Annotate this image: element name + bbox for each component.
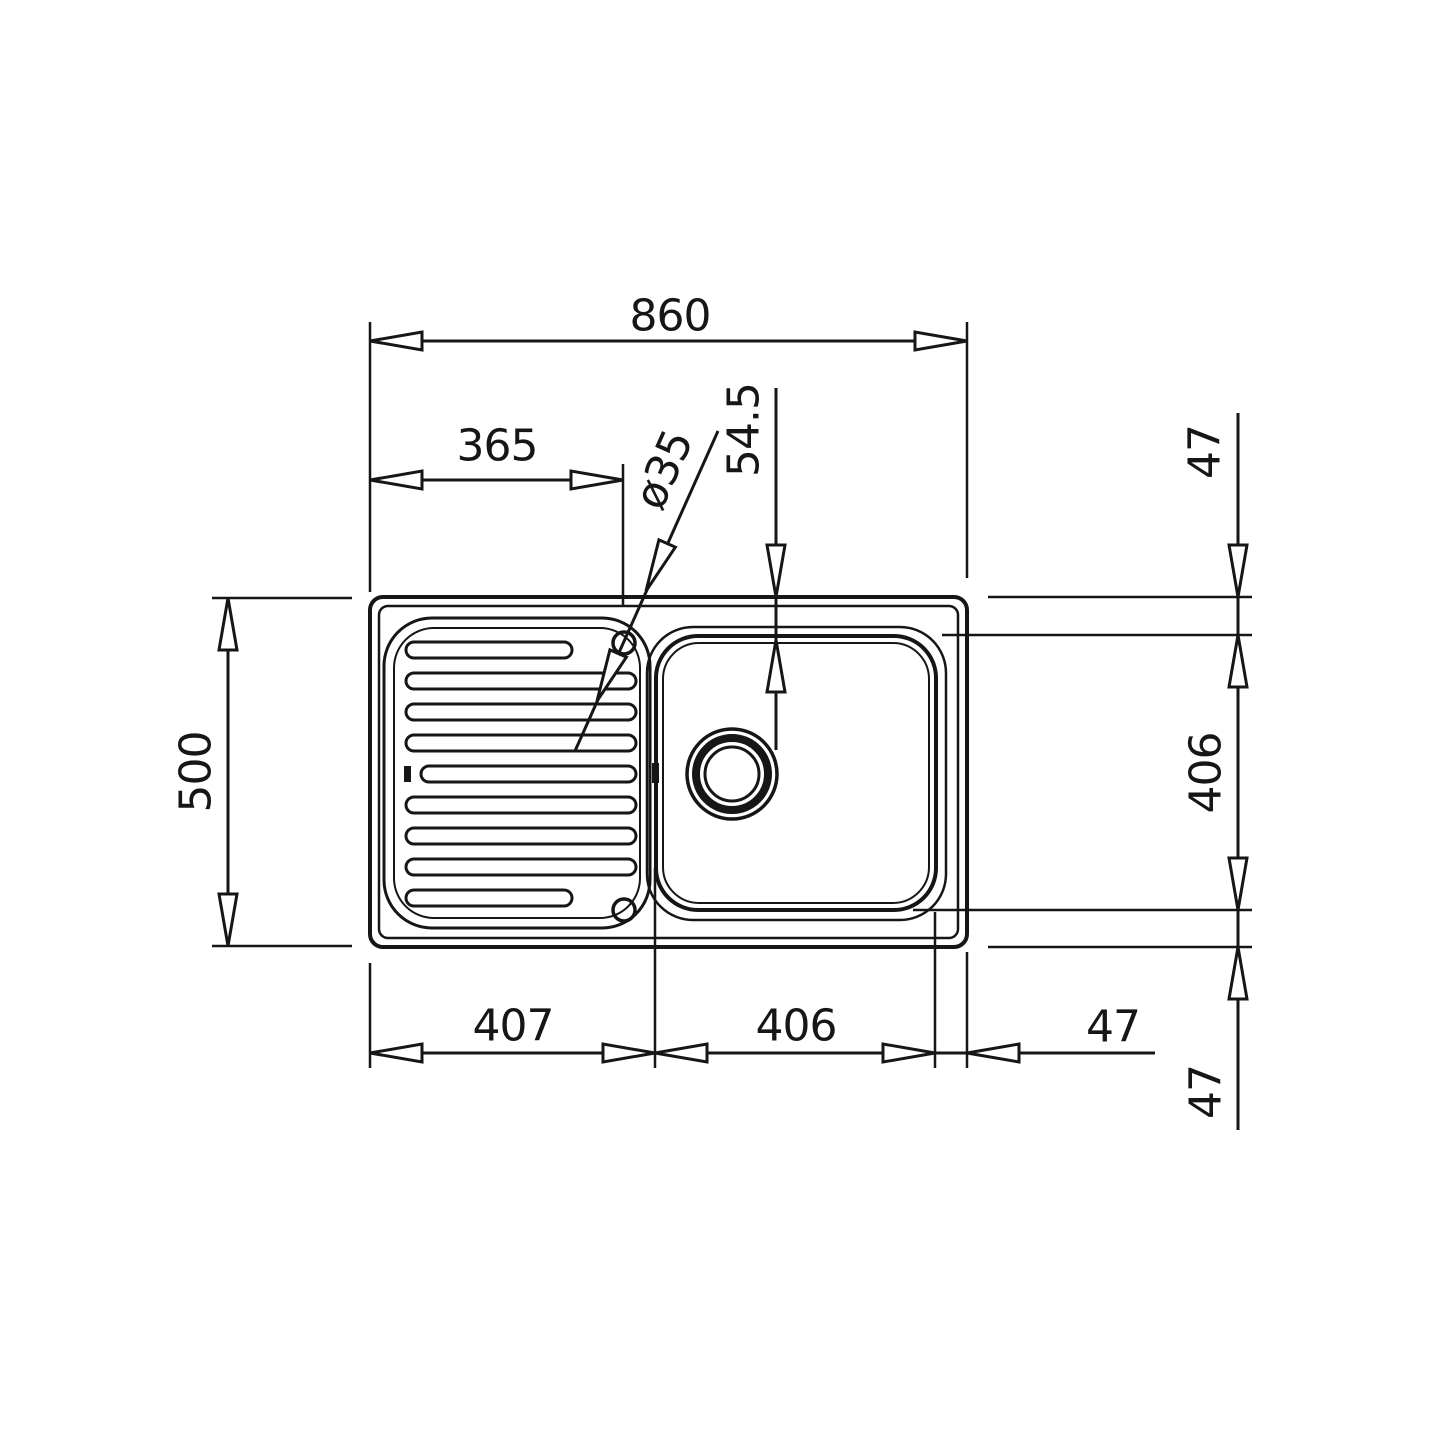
dim-label-tap-hole-diameter: ø35: [624, 423, 703, 517]
dim-label-bowl-depth: 406: [1181, 733, 1232, 814]
sink-dimension-drawing: 860 365 ø35 54.5 500 407 406 47 47 406 4…: [0, 0, 1445, 1445]
drainboard-rib-3: [406, 704, 636, 720]
drainboard-rib-9: [406, 890, 572, 906]
dim-label-drainer-width: 365: [457, 421, 538, 472]
bowl: [647, 627, 946, 920]
dim-label-bowl-width: 406: [756, 1001, 837, 1052]
bowl-rim-contour: [647, 627, 946, 920]
drainboard-rib-7: [406, 828, 636, 844]
dim-label-overall-depth: 500: [171, 732, 222, 813]
drain-ring-band: [696, 738, 768, 810]
arrowhead: [655, 1044, 707, 1062]
arrowhead: [370, 332, 422, 350]
arrowhead: [219, 598, 237, 650]
arrowhead: [1229, 545, 1247, 597]
drainboard-rib-6: [406, 797, 636, 813]
arrowhead: [1229, 947, 1247, 999]
arrowhead: [571, 471, 623, 489]
arrowhead: [638, 540, 676, 595]
technical-drawing-page: 860 365 ø35 54.5 500 407 406 47 47 406 4…: [0, 0, 1445, 1445]
arrowhead: [370, 1044, 422, 1062]
drainboard-rib-1: [406, 642, 572, 658]
arrowhead: [603, 1044, 655, 1062]
arrowhead: [589, 650, 627, 705]
drainboard-rib-4: [406, 735, 636, 751]
dim-label-drainer-section-width: 407: [473, 1001, 554, 1052]
arrowhead: [915, 332, 967, 350]
drain-inner-ring: [705, 747, 759, 801]
drainboard-rib-5: [421, 766, 636, 782]
drain: [687, 729, 777, 819]
dim-label-overall-width: 860: [630, 291, 711, 342]
arrowhead: [767, 640, 785, 692]
arrowhead: [883, 1044, 935, 1062]
drain-outer-ring: [687, 729, 777, 819]
arrowhead: [370, 471, 422, 489]
bowl-edge-dash: [652, 763, 659, 783]
arrowhead: [767, 545, 785, 597]
arrowhead: [1229, 635, 1247, 687]
dim-label-bowl-to-edge-right: 47: [1086, 1002, 1140, 1053]
drainboard-rib-dash: [404, 766, 411, 782]
drawing-root: 860 365 ø35 54.5 500 407 406 47 47 406 4…: [171, 291, 1253, 1131]
arrowhead: [219, 894, 237, 946]
arrowhead: [967, 1044, 1019, 1062]
arrowhead: [1229, 858, 1247, 910]
dim-label-rim-to-bowl-bottom-right: 47: [1181, 1065, 1232, 1119]
drainboard-rib-8: [406, 859, 636, 875]
dim-label-rim-to-bowl-top-right: 47: [1180, 425, 1231, 479]
bowl-inner-edge: [663, 643, 929, 903]
dim-label-rim-to-bowl: 54.5: [719, 383, 770, 477]
dimension-labels: 860 365 ø35 54.5 500 407 406 47 47 406 4…: [171, 291, 1232, 1120]
sink-inner-rim: [379, 606, 958, 938]
